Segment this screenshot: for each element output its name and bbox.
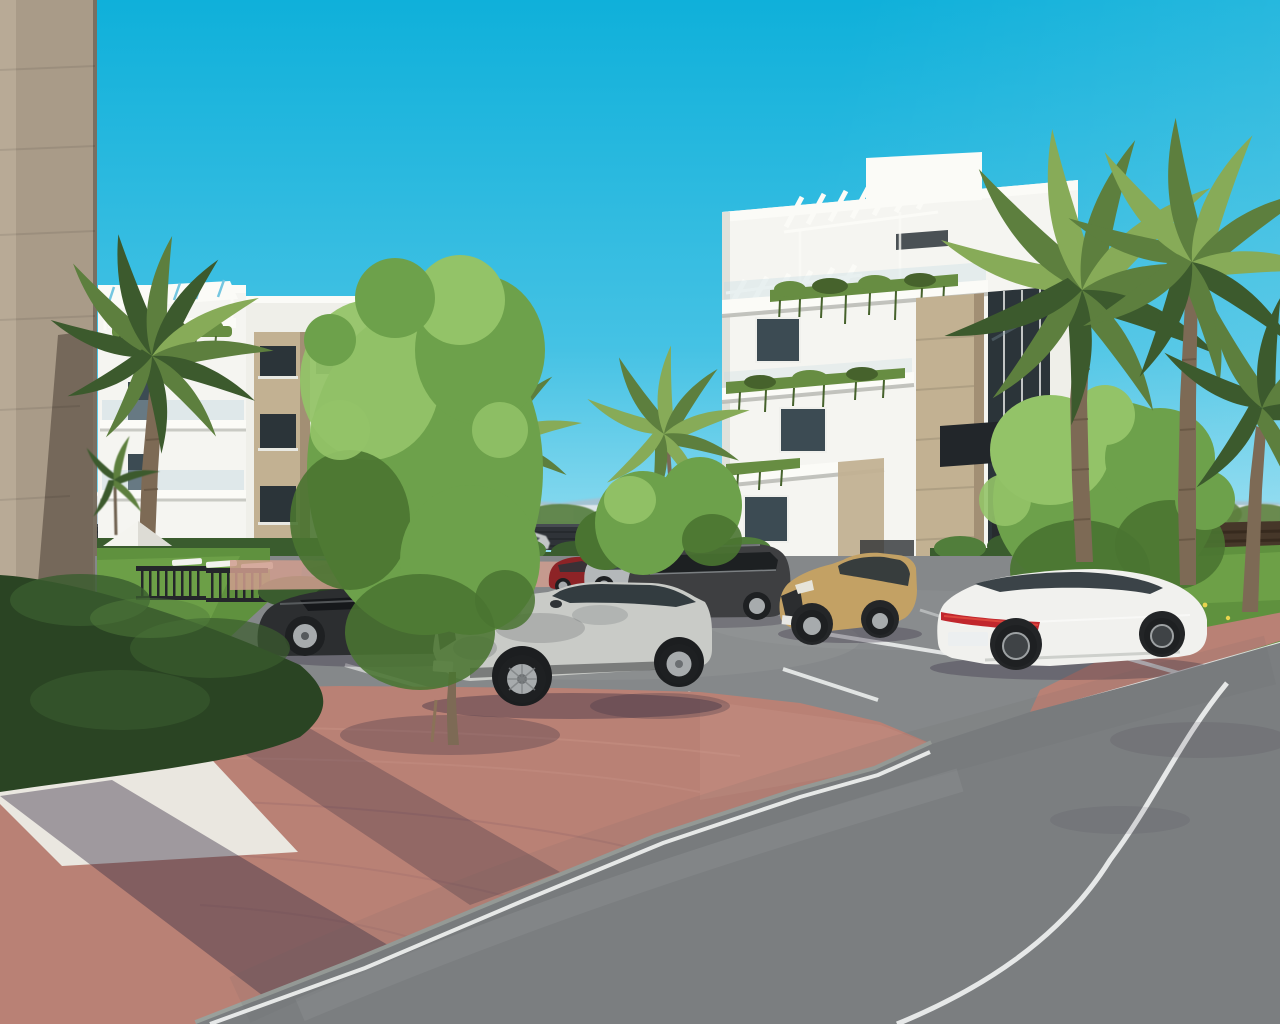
small-trees xyxy=(575,457,742,575)
render-scene xyxy=(0,0,1280,1024)
stone-column-windows xyxy=(258,346,298,525)
scene-canvas xyxy=(0,0,1280,1024)
